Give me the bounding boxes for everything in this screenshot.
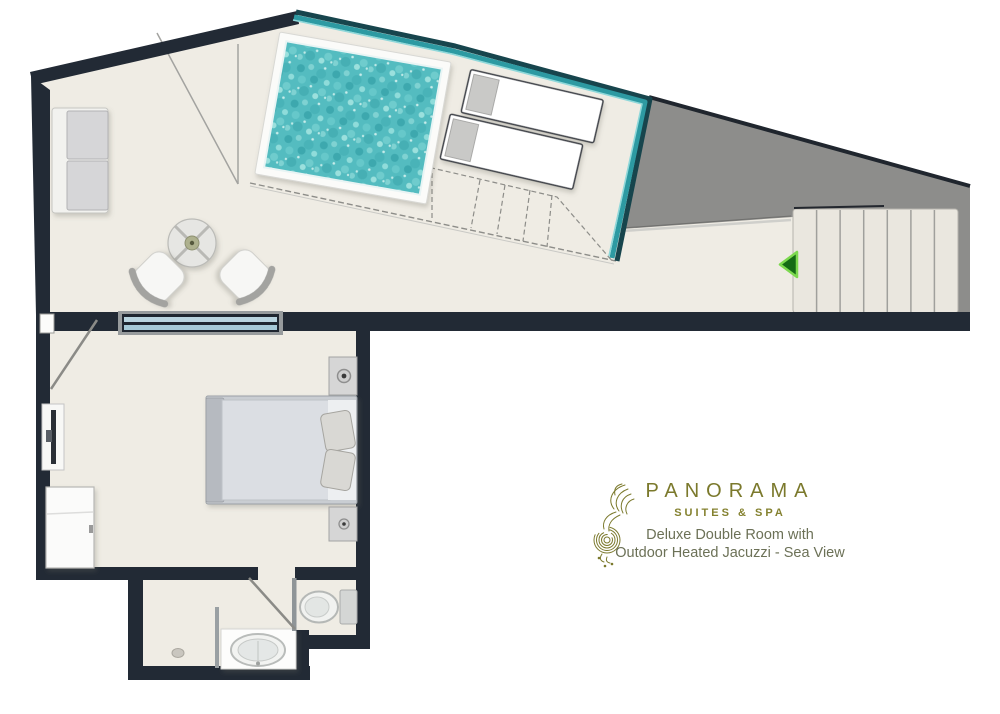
logo-block: PANORAMA SUITES & SPA Deluxe Double Room… — [560, 480, 900, 562]
sofa-cushion — [67, 111, 108, 159]
floorplan-canvas: PANORAMA SUITES & SPA Deluxe Double Room… — [0, 0, 1000, 714]
pool-water — [264, 41, 442, 194]
floorplan-drawing — [0, 0, 1000, 714]
bed-pillow — [320, 449, 356, 492]
jacuzzi-pool — [255, 32, 451, 204]
bed-duvet — [222, 400, 330, 500]
room-description-line2: Outdoor Heated Jacuzzi - Sea View — [560, 545, 900, 563]
nightstand-top — [329, 357, 357, 395]
sofa-cushion — [67, 161, 108, 210]
toilet-tank — [340, 590, 357, 624]
tv-panel — [42, 404, 64, 470]
brand-tagline: SUITES & SPA — [560, 507, 900, 519]
toilet — [300, 590, 357, 624]
bathroom-corridor-floor — [258, 567, 297, 581]
brand-name: PANORAMA — [560, 480, 900, 503]
wardrobe-minibar — [46, 487, 94, 568]
sliding-window — [118, 311, 283, 335]
parasol-table — [168, 219, 216, 267]
shower-drain — [172, 649, 184, 658]
nightstand-bottom — [329, 507, 357, 541]
room-description-line1: Deluxe Double Room with — [560, 527, 900, 545]
toilet-partition — [292, 578, 297, 631]
double-bed — [206, 396, 357, 504]
outdoor-sofa — [52, 108, 108, 213]
bed-pillow — [320, 410, 356, 453]
sink-counter — [221, 629, 296, 669]
door-jamb — [40, 314, 54, 333]
staircase — [793, 206, 958, 313]
shower-glass-partition — [215, 607, 219, 668]
bed-foot-bench — [206, 398, 224, 502]
